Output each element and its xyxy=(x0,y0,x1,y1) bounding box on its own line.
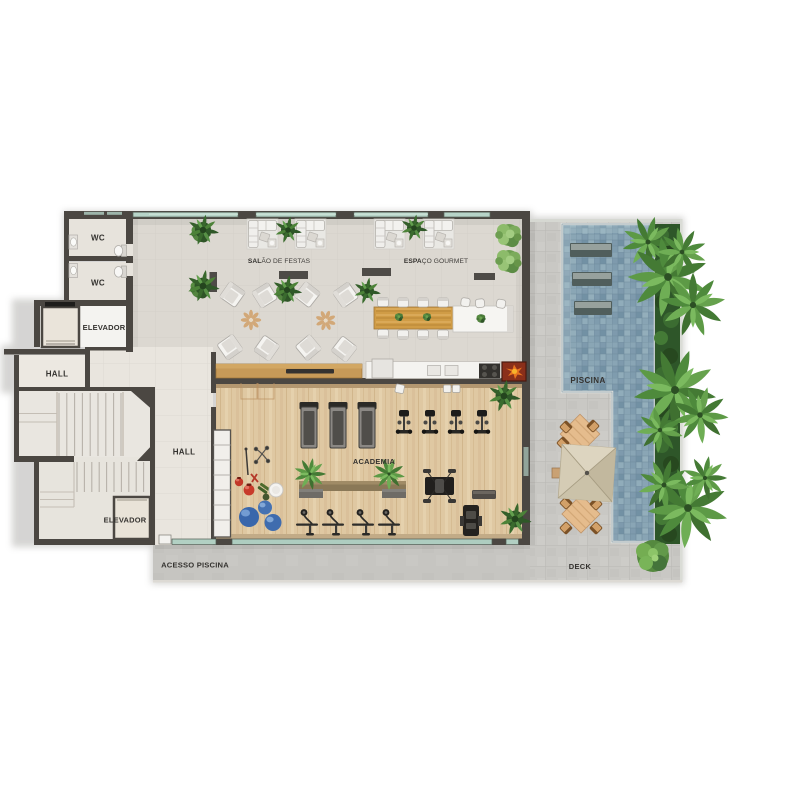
svg-text:WC: WC xyxy=(91,234,105,243)
svg-text:ESPAÇO GOURMET: ESPAÇO GOURMET xyxy=(404,258,468,265)
svg-text:DECK: DECK xyxy=(569,562,592,571)
svg-text:PISCINA: PISCINA xyxy=(570,376,605,385)
svg-text:SALÃO DE FESTAS: SALÃO DE FESTAS xyxy=(248,256,311,265)
svg-text:ACESSO PISCINA: ACESSO PISCINA xyxy=(161,561,229,570)
svg-text:HALL: HALL xyxy=(173,448,196,457)
svg-text:ACADEMIA: ACADEMIA xyxy=(353,457,396,466)
svg-text:ELEVADOR: ELEVADOR xyxy=(104,516,147,525)
svg-text:WC: WC xyxy=(91,279,105,288)
svg-text:HALL: HALL xyxy=(46,370,69,379)
svg-text:ELEVADOR: ELEVADOR xyxy=(83,323,126,332)
